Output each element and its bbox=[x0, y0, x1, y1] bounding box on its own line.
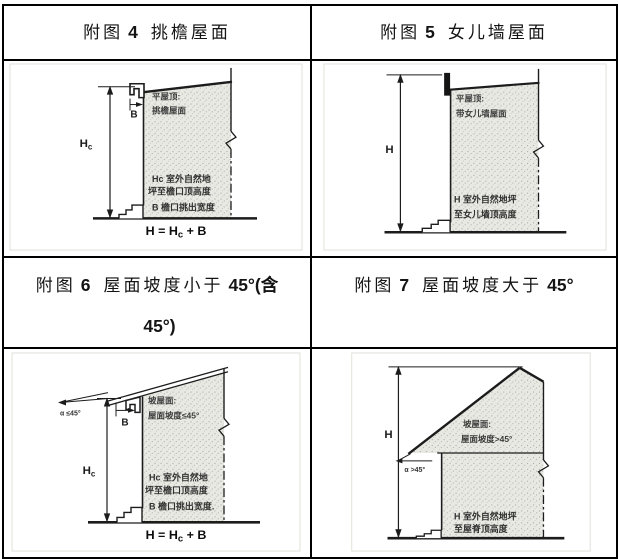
figure-7-angle: 45° bbox=[547, 275, 573, 295]
figure-4-title: 附图4挑檐屋面 bbox=[4, 6, 310, 59]
entrance-steps bbox=[422, 220, 450, 232]
dim-arrow-down bbox=[397, 223, 403, 232]
figure-5-diagram-cell: H 平屋顶: 带女儿墙屋面 H 室外自然地坪 至女儿墙顶高度 bbox=[311, 60, 617, 257]
roof-type-line2: 挑檐屋面 bbox=[152, 106, 186, 116]
hc-sub: c bbox=[91, 469, 96, 478]
note-line2: 坪至檐口顶高度 bbox=[145, 485, 208, 496]
figure-6-diagram: α ≤45° B Hc 坡屋面: 屋面坡度≤45° Hc 室外自然地 坪至檐口顶… bbox=[4, 349, 310, 557]
figure-6-title: 附图6屋面坡度小于45°(含45°) bbox=[4, 265, 310, 347]
formula-tail: + B bbox=[183, 528, 206, 542]
angle-wedge-arrow bbox=[58, 400, 66, 406]
figure-7-diagram: α >45° H 坡屋面: 屋面坡度>45° H 室外自然地坪 至屋脊顶高度 bbox=[312, 349, 616, 557]
dim-arrow-down bbox=[104, 513, 110, 522]
figure-5-diagram: H 平屋顶: 带女儿墙屋面 H 室外自然地坪 至女儿墙顶高度 bbox=[312, 61, 616, 256]
height-dim-label: Hc bbox=[83, 465, 96, 478]
figure-7-header-cell: 附图7屋面坡度大于45° bbox=[311, 257, 617, 348]
roof-type-line2: 带女儿墙屋面 bbox=[456, 108, 507, 118]
roof-type-line1: 平屋顶: bbox=[152, 92, 180, 102]
b-dim-arrow bbox=[128, 408, 135, 413]
height-formula: H = Hc + B bbox=[146, 528, 207, 544]
roof-type-line1: 平屋顶: bbox=[456, 94, 484, 104]
figure-5-label: 附图 bbox=[380, 23, 420, 42]
figure-6-angle2: 45°) bbox=[143, 316, 175, 336]
note-line1: Hc 室外自然地 bbox=[149, 472, 208, 483]
document-page: 附图4挑檐屋面 附图5女儿墙屋面 bbox=[0, 0, 619, 559]
figure-5-number: 5 bbox=[425, 22, 435, 42]
hc-sub: c bbox=[88, 143, 93, 152]
figure-4-label: 附图 bbox=[83, 23, 123, 42]
roof-type-line2: 屋面坡度>45° bbox=[461, 434, 512, 444]
dim-arrow-down bbox=[395, 529, 401, 538]
height-dim-label: Hc bbox=[80, 138, 93, 151]
height-formula: H = Hc + B bbox=[146, 224, 207, 240]
height-dim-label: H bbox=[385, 144, 393, 156]
parapet-wall bbox=[444, 73, 450, 96]
b-dim-label: B bbox=[121, 417, 128, 428]
formula-main: H = H bbox=[146, 224, 178, 238]
figure-5-header-cell: 附图5女儿墙屋面 bbox=[311, 5, 617, 60]
entrance-steps bbox=[117, 507, 142, 522]
roof-type-line1: 坡屋面: bbox=[463, 419, 491, 429]
figure-7-number: 7 bbox=[399, 275, 409, 295]
figure-7-name: 屋面坡度大于 bbox=[422, 276, 542, 295]
formula-main: H = H bbox=[146, 528, 178, 542]
roof-type-line2: 屋面坡度≤45° bbox=[148, 410, 200, 420]
note-line3: B 檐口挑出宽度. bbox=[149, 501, 214, 512]
figure-6-name: 屋面坡度小于 bbox=[103, 276, 223, 295]
figure-4-name: 挑檐屋面 bbox=[151, 23, 231, 42]
entrance-steps bbox=[119, 205, 143, 218]
figure-5-title: 附图5女儿墙屋面 bbox=[312, 6, 616, 59]
note-line2: 至屋脊顶高度 bbox=[454, 523, 508, 534]
hc-main: H bbox=[83, 465, 91, 477]
height-dim-label: H bbox=[384, 429, 392, 441]
building-body bbox=[143, 82, 231, 219]
figure-7-label: 附图 bbox=[354, 276, 394, 295]
figure-6-diagram-cell: α ≤45° B Hc 坡屋面: 屋面坡度≤45° Hc 室外自然地 坪至檐口顶… bbox=[3, 348, 311, 558]
eave-cornice bbox=[130, 84, 144, 98]
figure-4-diagram: B Hc 平屋顶: 挑檐屋面 Hc 室外自然地 坪至檐口顶高度 B 檐口挑出宽度… bbox=[4, 61, 310, 256]
angle-label: α ≤45° bbox=[60, 409, 81, 417]
figure-4-header-cell: 附图4挑檐屋面 bbox=[3, 5, 311, 60]
figure-7-diagram-cell: α >45° H 坡屋面: 屋面坡度>45° H 室外自然地坪 至屋脊顶高度 bbox=[311, 348, 617, 558]
figure-5-name: 女儿墙屋面 bbox=[448, 23, 548, 42]
note-line2: 至女儿墙顶高度 bbox=[454, 208, 517, 219]
entrance-steps bbox=[416, 530, 441, 538]
note-line1: Hc 室外自然地 bbox=[152, 173, 211, 184]
roof-type-line1: 坡屋面: bbox=[148, 396, 176, 406]
figure-6-angle: 45°(含 bbox=[228, 275, 278, 295]
angle-label: α >45° bbox=[404, 466, 425, 474]
figure-7-title: 附图7屋面坡度大于45° bbox=[312, 265, 616, 306]
note-line2: 坪至檐口顶高度 bbox=[148, 186, 211, 197]
b-dim-arrow bbox=[136, 102, 143, 107]
figure-6-number: 6 bbox=[81, 275, 91, 295]
note-line1: H 室外自然地坪 bbox=[454, 510, 517, 521]
figure-4-diagram-cell: B Hc 平屋顶: 挑檐屋面 Hc 室外自然地 坪至檐口顶高度 B 檐口挑出宽度… bbox=[3, 60, 311, 257]
dim-arrow-down bbox=[107, 209, 113, 218]
figure-6-header-cell: 附图6屋面坡度小于45°(含45°) bbox=[3, 257, 311, 348]
note-line3: B 檐口挑出宽度 bbox=[152, 202, 215, 213]
note-line1: H 室外自然地坪 bbox=[454, 194, 517, 205]
figure-4-number: 4 bbox=[128, 22, 138, 42]
figure-6-label: 附图 bbox=[36, 276, 76, 295]
hc-main: H bbox=[80, 138, 88, 150]
b-dim-label: B bbox=[130, 109, 137, 120]
formula-tail: + B bbox=[183, 224, 206, 238]
figure-table: 附图4挑檐屋面 附图5女儿墙屋面 bbox=[2, 4, 618, 559]
